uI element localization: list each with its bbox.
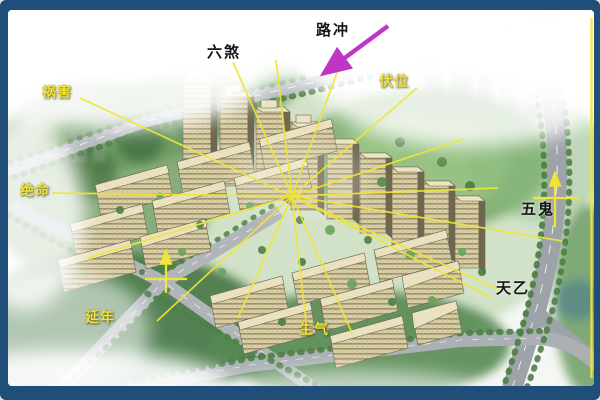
aerial-rendering: 六煞 路冲 伏位 祸害 绝命 五鬼 天乙 延年 生气 <box>8 10 594 386</box>
framed-image: 六煞 路冲 伏位 祸害 绝命 五鬼 天乙 延年 生气 <box>0 0 600 400</box>
site-plan-graphic <box>8 10 594 386</box>
